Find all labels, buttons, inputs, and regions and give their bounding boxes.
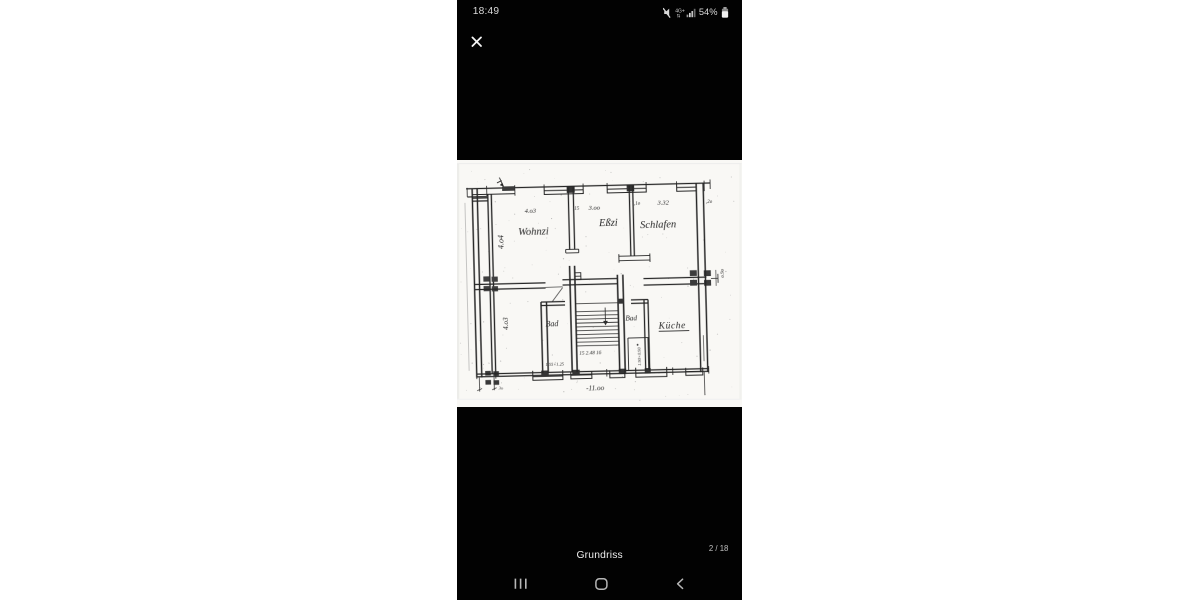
svg-text:4.o3: 4.o3	[525, 208, 537, 215]
svg-text:4.o4: 4.o4	[497, 235, 506, 249]
svg-text:-11.oo: -11.oo	[586, 384, 605, 392]
svg-text:‚1o: ‚1o	[634, 202, 641, 207]
svg-text:1.90×0.90: 1.90×0.90	[637, 347, 642, 366]
svg-text:3.oo: 3.oo	[588, 205, 601, 212]
svg-text:Wohnzi: Wohnzi	[518, 227, 549, 239]
svg-text:Eßzi: Eßzi	[598, 218, 618, 229]
svg-text:4.o3: 4.o3	[502, 317, 510, 330]
svg-text:1.55×1.25: 1.55×1.25	[546, 362, 565, 367]
svg-text:‚2o: ‚2o	[706, 200, 713, 205]
svg-text:15 2.48 16: 15 2.48 16	[580, 349, 603, 357]
svg-text:⇅: ⇅	[677, 14, 681, 19]
svg-text:Bad: Bad	[546, 319, 560, 328]
svg-text:o.9o: o.9o	[721, 269, 726, 278]
svg-text:Bad: Bad	[626, 315, 638, 323]
svg-text:3.32: 3.32	[657, 200, 670, 207]
svg-text:Küche: Küche	[658, 321, 687, 332]
svg-text:3o: 3o	[499, 386, 504, 391]
svg-text:‚15: ‚15	[573, 207, 580, 212]
svg-text:Schlafen: Schlafen	[640, 220, 676, 232]
